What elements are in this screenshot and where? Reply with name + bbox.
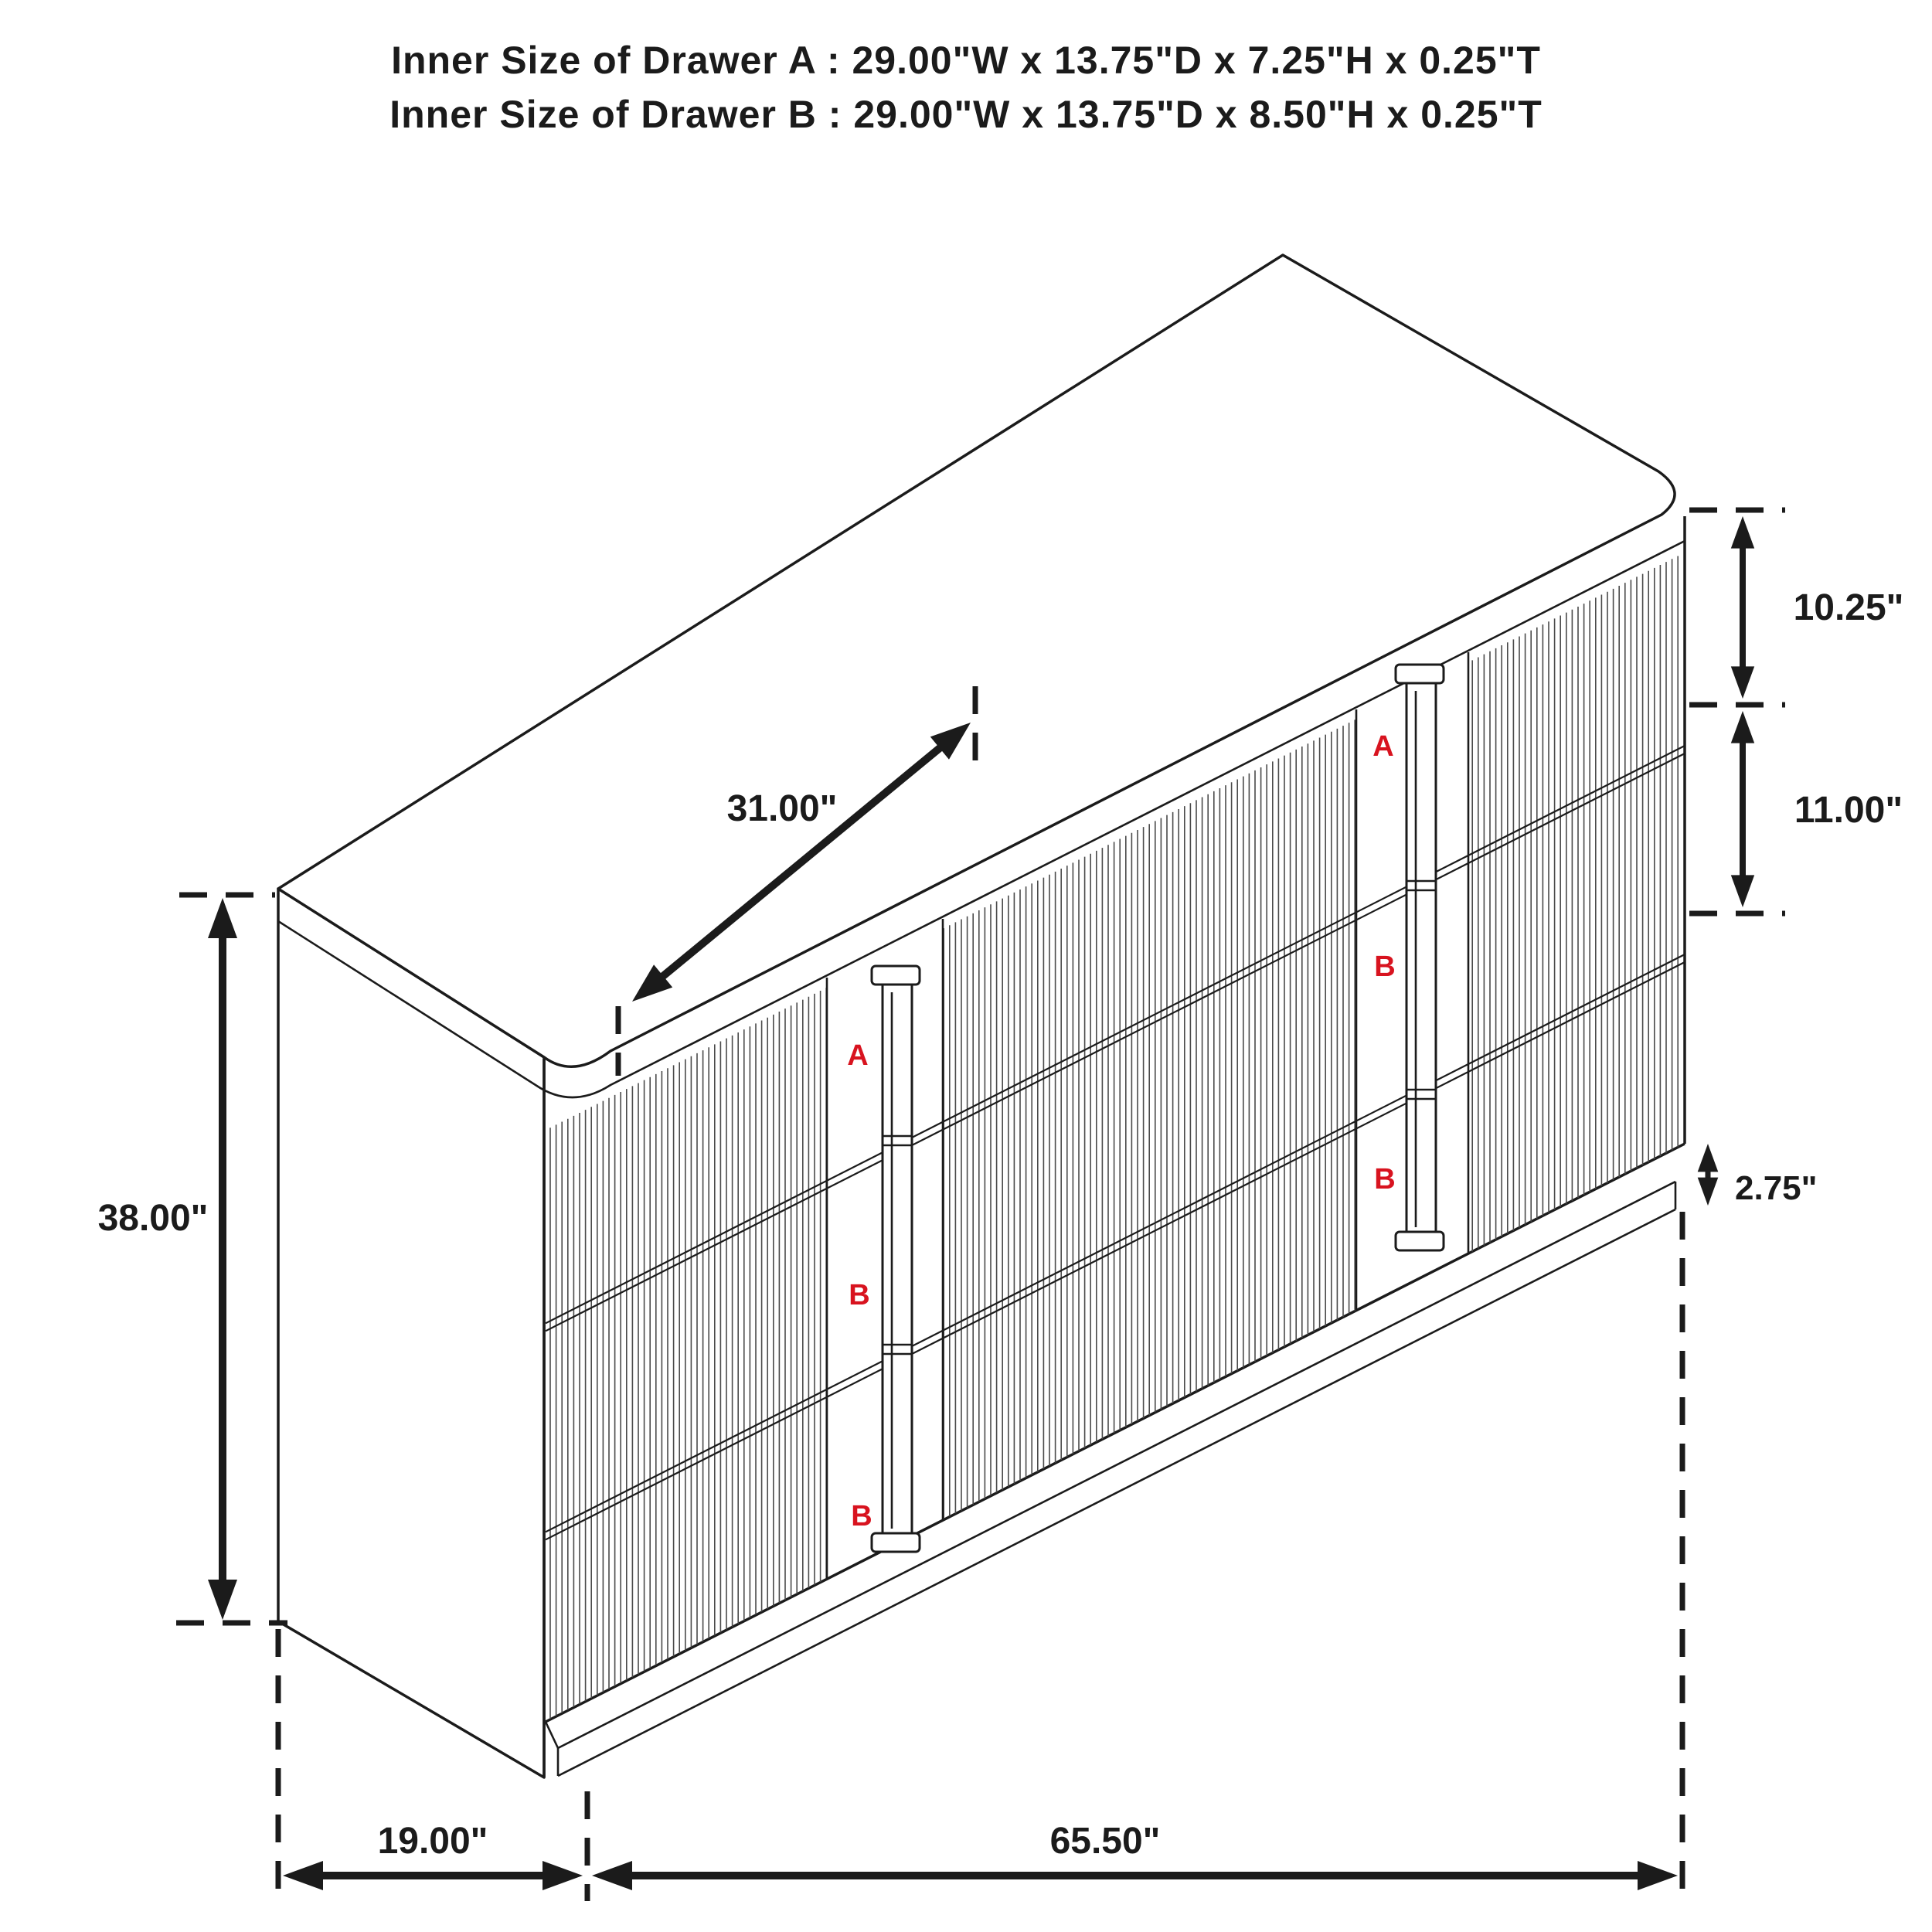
cabinet-top-face <box>278 255 1675 1066</box>
diagram-canvas: Inner Size of Drawer A : 29.00"W x 13.75… <box>0 0 1932 1932</box>
dresser-dimension-diagram: Inner Size of Drawer A : 29.00"W x 13.75… <box>0 0 1932 1932</box>
right-drawer-handle <box>1396 665 1444 1250</box>
dim-plinth-height-label: 2.75" <box>1735 1169 1818 1207</box>
drawer-label-right-a: A <box>1372 730 1393 763</box>
dim-middle-width-label: 31.00" <box>727 788 838 829</box>
drawer-label-left-b2: B <box>851 1500 872 1532</box>
dim-overall-width-label: 65.50" <box>1050 1821 1161 1862</box>
drawer-label-right-b1: B <box>1374 951 1395 983</box>
drawer-label-left-a: A <box>847 1039 868 1072</box>
drawer-label-right-b2: B <box>1374 1163 1395 1196</box>
dim-drawer-a-height-label: 10.25" <box>1794 587 1904 628</box>
dim-overall-height-label: 38.00" <box>98 1198 209 1239</box>
left-drawer-handle <box>872 966 920 1552</box>
dim-depth-label: 19.00" <box>378 1821 488 1862</box>
cabinet-drawing: A B B A B B <box>278 255 1685 1777</box>
title-line-1: Inner Size of Drawer A : 29.00"W x 13.75… <box>391 39 1541 82</box>
title-line-2: Inner Size of Drawer B : 29.00"W x 13.75… <box>389 93 1543 136</box>
drawer-label-left-b1: B <box>849 1279 869 1311</box>
dim-drawer-b-height-label: 11.00" <box>1794 790 1903 831</box>
